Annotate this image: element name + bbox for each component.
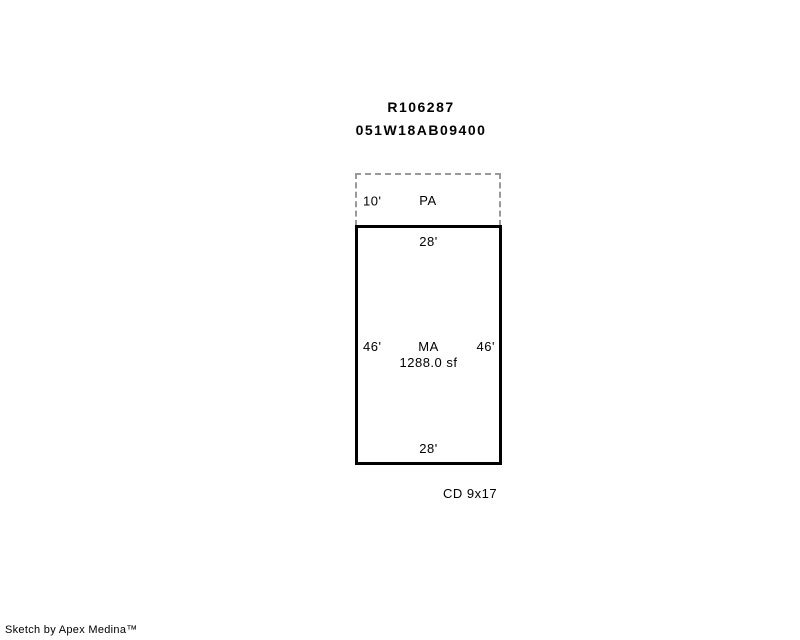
ma-area-outline: 28' 46' MA 46' 1288.0 sf 28': [355, 225, 502, 465]
ma-right-dimension: 46': [477, 339, 495, 354]
sketch-page: R106287 051W18AB09400 10' PA 28' 46' MA …: [0, 0, 800, 640]
ma-bottom-dimension: 28': [358, 441, 499, 456]
pa-left-dimension: 10': [363, 193, 381, 208]
ma-area-value: 1288.0 sf: [358, 355, 499, 370]
pa-area-outline: 10' PA: [355, 173, 501, 226]
sketch-credit: Sketch by Apex Medina™: [5, 624, 138, 636]
record-id: R106287: [42, 96, 800, 119]
parcel-id: 051W18AB09400: [42, 119, 800, 142]
cd-size-label: CD 9x17: [443, 486, 497, 501]
ma-top-dimension: 28': [358, 234, 499, 249]
header: R106287 051W18AB09400: [42, 96, 800, 142]
